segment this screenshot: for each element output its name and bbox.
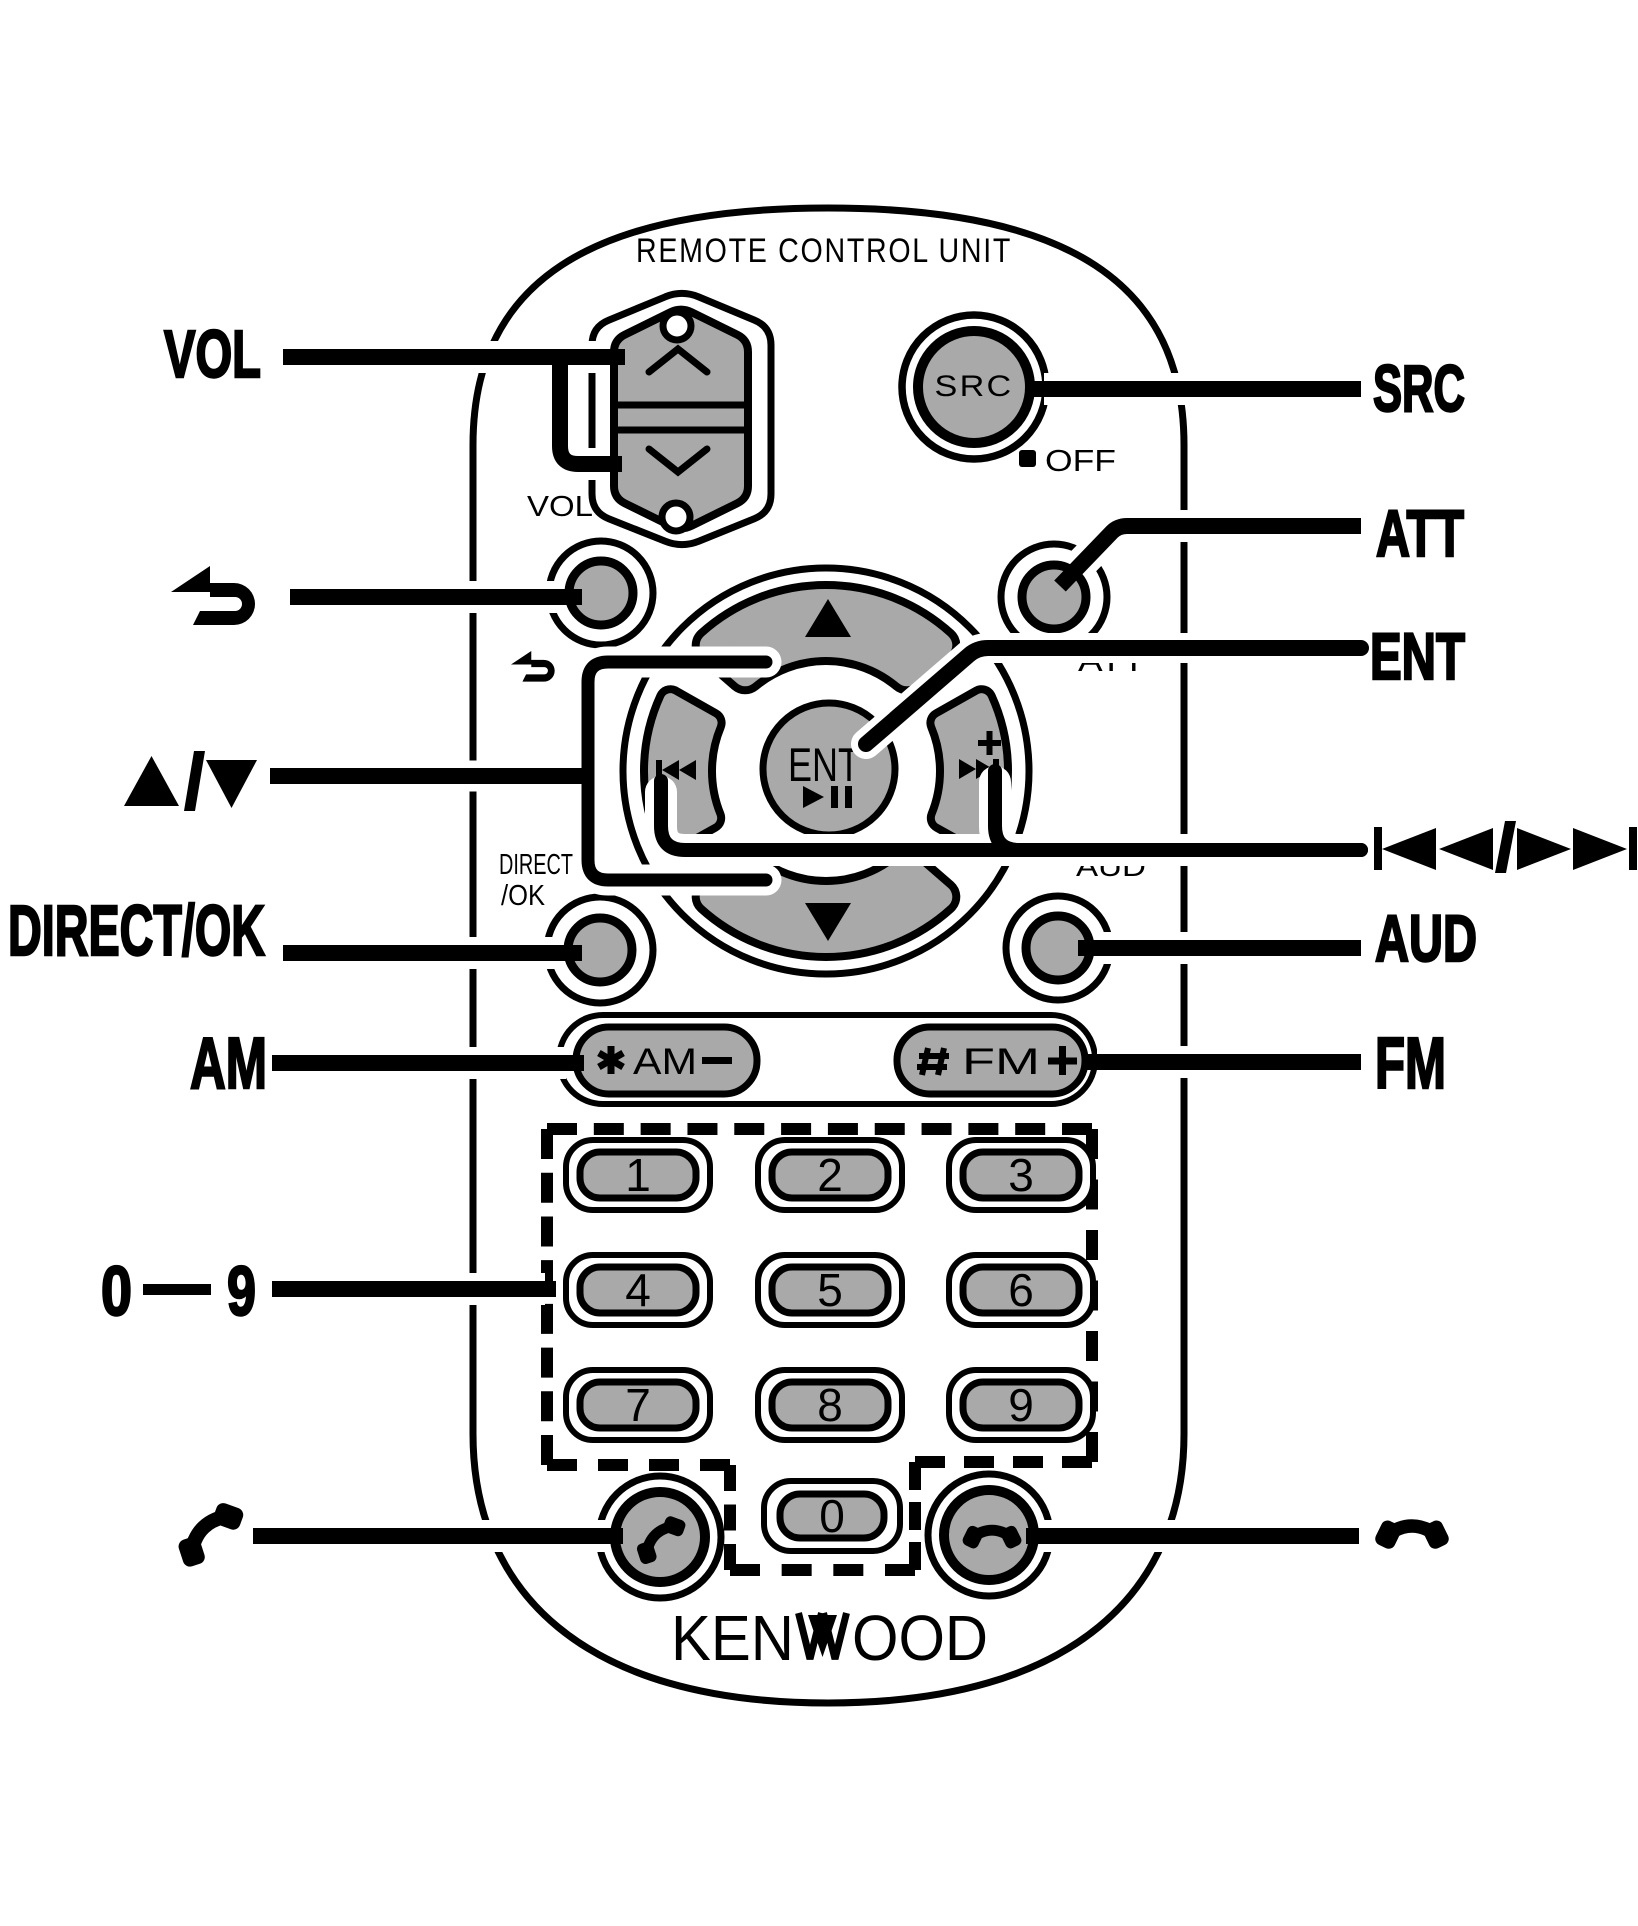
svg-text:ENT: ENT: [788, 738, 860, 791]
svg-text:DIRECT: DIRECT: [499, 849, 573, 881]
svg-text:3: 3: [1008, 1149, 1034, 1201]
svg-text:DIRECT/OK: DIRECT/OK: [8, 892, 265, 971]
svg-text:AM: AM: [633, 1041, 697, 1082]
svg-text:VOL: VOL: [164, 317, 261, 392]
svg-text:AUD: AUD: [1375, 901, 1477, 975]
svg-text:AM: AM: [190, 1024, 267, 1104]
svg-text:4: 4: [625, 1264, 651, 1316]
svg-text:/OK: /OK: [501, 880, 546, 912]
svg-text:0: 0: [819, 1490, 845, 1542]
svg-text:5: 5: [817, 1264, 843, 1316]
svg-text:ATT: ATT: [1376, 496, 1464, 570]
svg-text:SRC: SRC: [935, 370, 1014, 403]
svg-text:9: 9: [227, 1252, 256, 1330]
svg-text:9: 9: [1008, 1379, 1034, 1431]
svg-text:7: 7: [625, 1379, 651, 1431]
svg-text:6: 6: [1008, 1264, 1034, 1316]
svg-text:OFF: OFF: [1045, 443, 1116, 478]
svg-text:SRC: SRC: [1373, 351, 1465, 425]
svg-text:ENT: ENT: [1370, 619, 1465, 693]
svg-text:8: 8: [817, 1379, 843, 1431]
svg-text:1: 1: [625, 1149, 651, 1201]
svg-text:2: 2: [817, 1149, 843, 1201]
svg-text:FM: FM: [962, 1041, 1040, 1082]
svg-text:KEN: KEN: [671, 1602, 794, 1674]
svg-text:VOL: VOL: [527, 491, 593, 523]
svg-text:FM: FM: [1375, 1024, 1446, 1104]
svg-text:OOD: OOD: [852, 1602, 988, 1674]
svg-text:REMOTE CONTROL UNIT: REMOTE CONTROL UNIT: [636, 232, 1012, 270]
svg-text:0: 0: [101, 1252, 132, 1330]
